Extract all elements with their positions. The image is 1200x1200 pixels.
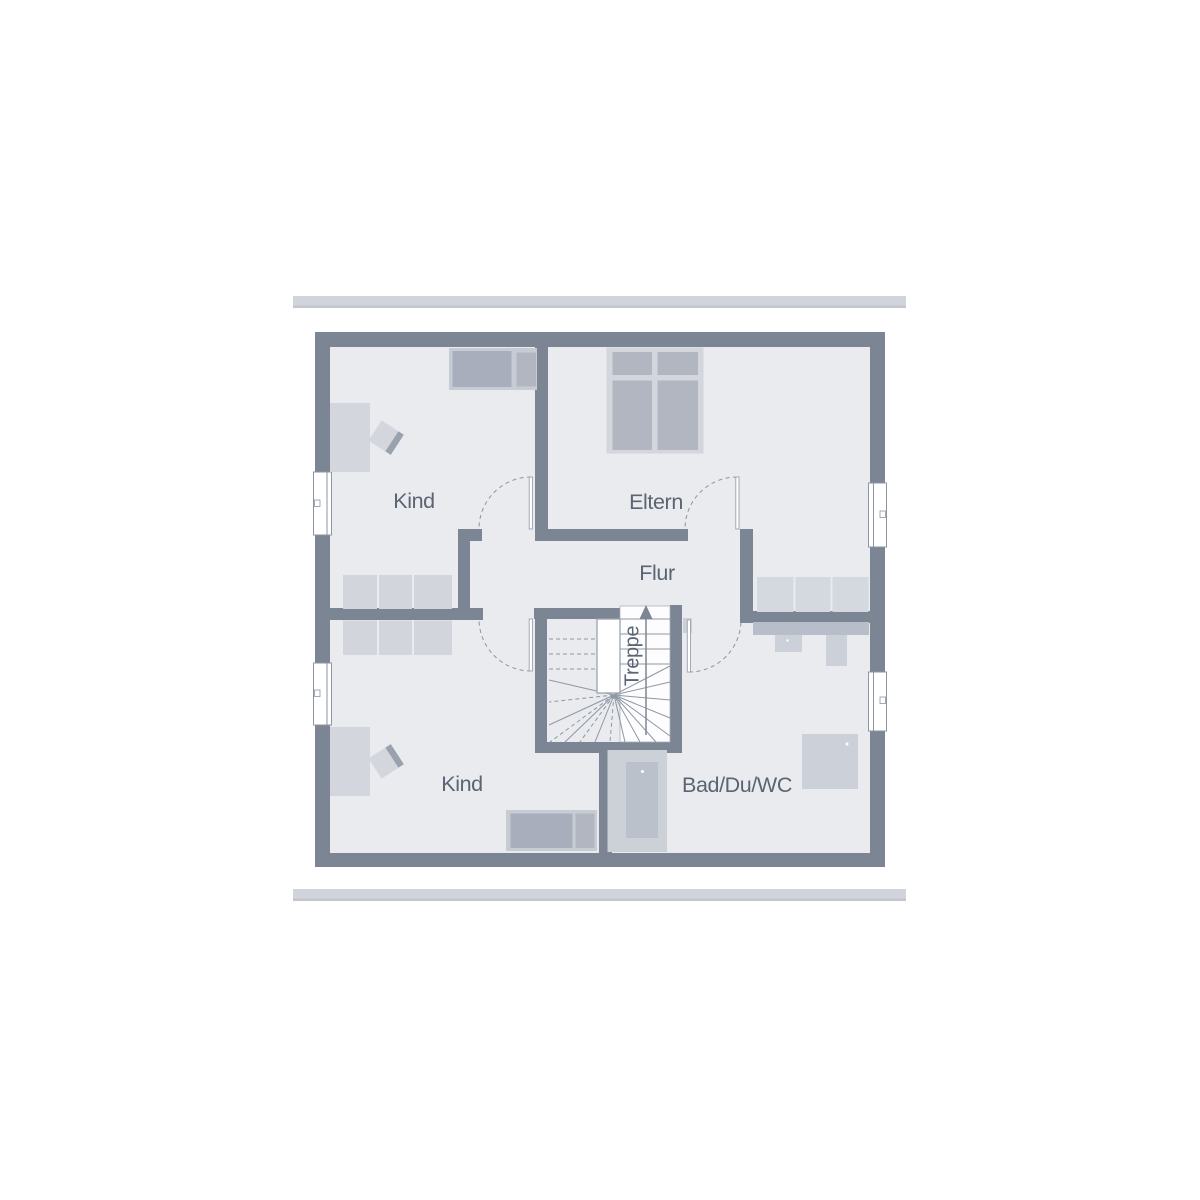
wall-segment: [670, 605, 682, 753]
room-label-kind-top: Kind: [393, 489, 434, 513]
window: [314, 663, 332, 725]
wall-segment: [458, 529, 482, 541]
desk-icon: [330, 403, 370, 472]
shower-icon: [608, 750, 668, 852]
wall-segment: [315, 332, 330, 867]
wall-segment: [315, 332, 885, 347]
room-label-flur: Flur: [639, 561, 675, 585]
window: [869, 672, 887, 731]
bathtub-icon: [802, 734, 858, 789]
roof-bar-bottom-edge: [293, 899, 906, 902]
wc-icon: [826, 635, 847, 666]
wall-segment: [740, 529, 753, 613]
wall-segment: [870, 332, 885, 867]
vanity-icon: [753, 622, 869, 635]
window: [314, 472, 332, 535]
floor-plan-page: Treppe: [0, 0, 1200, 1200]
wall-segment: [535, 608, 547, 753]
room-label-treppe: Treppe: [622, 626, 644, 687]
wall-segment: [315, 853, 885, 867]
bed-icon: [449, 348, 537, 390]
wall-segment: [458, 529, 470, 620]
floor-plan-canvas: Treppe: [0, 0, 1200, 1200]
double-bed-icon: [607, 348, 704, 454]
roof-bar-top-edge: [293, 306, 906, 309]
room-label-kind-bottom: Kind: [441, 772, 482, 796]
room-label-bad: Bad/Du/WC: [682, 773, 792, 797]
wall-segment: [535, 529, 688, 541]
shelf-icon: [343, 621, 452, 656]
room-label-eltern: Eltern: [629, 490, 683, 514]
shelf-icon: [343, 575, 452, 609]
stair-void: [597, 619, 620, 693]
bed-icon: [506, 810, 597, 851]
desk-icon: [330, 727, 370, 796]
washbasin-icon: [775, 635, 802, 652]
wall-segment: [740, 611, 870, 623]
wardrobe-icon: [757, 577, 869, 612]
window: [869, 483, 887, 547]
